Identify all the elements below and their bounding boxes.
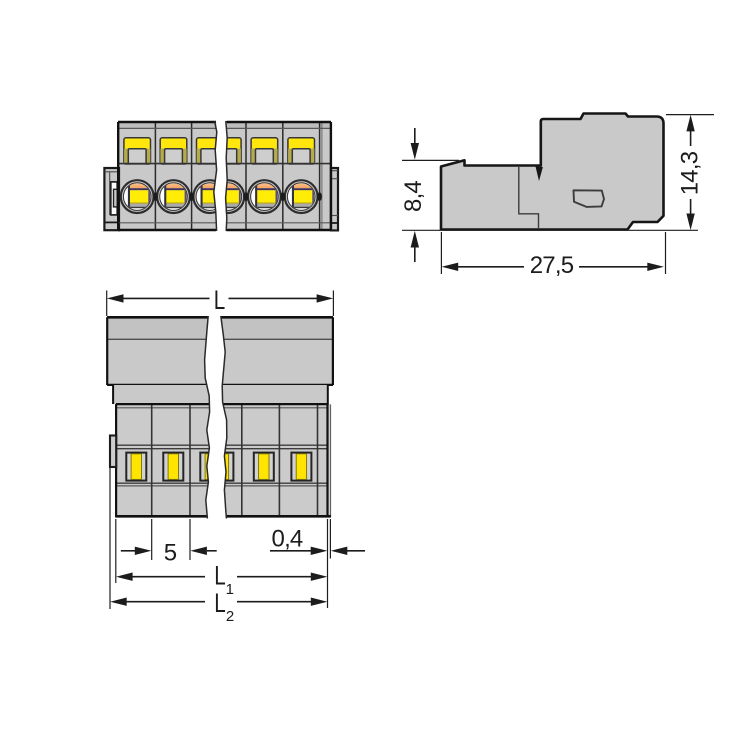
svg-text:L: L (214, 589, 225, 619)
svg-text:2: 2 (226, 608, 234, 625)
svg-text:1: 1 (226, 581, 234, 598)
svg-text:5: 5 (164, 540, 177, 567)
svg-text:0,4: 0,4 (272, 526, 303, 553)
svg-text:L: L (214, 285, 225, 315)
svg-text:L: L (214, 561, 225, 591)
svg-text:27,5: 27,5 (530, 252, 574, 279)
svg-text:14,3: 14,3 (676, 151, 703, 195)
svg-text:8,4: 8,4 (400, 181, 427, 212)
